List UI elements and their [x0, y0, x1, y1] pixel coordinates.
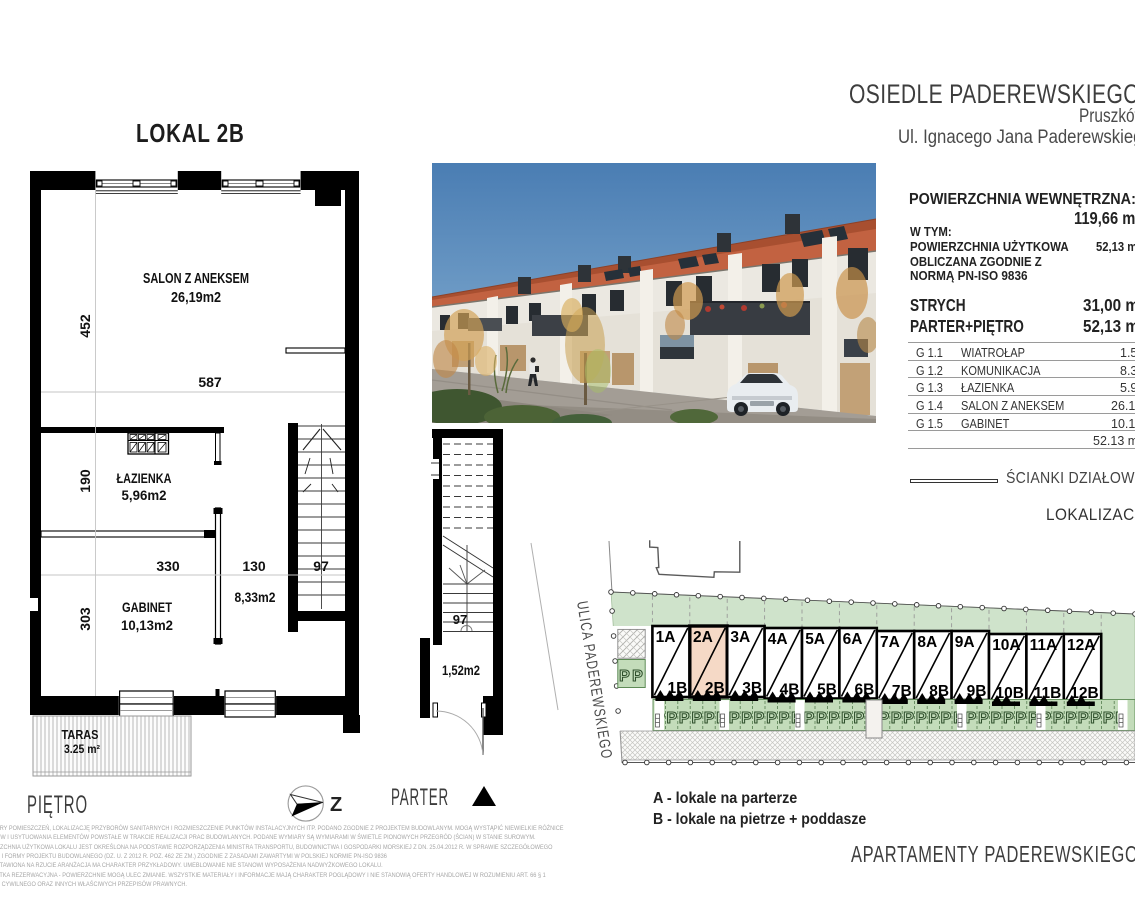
svg-text:26,19m2: 26,19m2 [171, 290, 221, 306]
svg-text:P: P [828, 710, 839, 727]
svg-text:P: P [1053, 710, 1064, 727]
svg-text:190: 190 [77, 469, 93, 493]
svg-text:P: P [1065, 710, 1076, 727]
svg-text:8A: 8A [917, 634, 937, 651]
svg-text:97: 97 [313, 558, 329, 574]
svg-text:5,96m2: 5,96m2 [122, 488, 167, 503]
svg-text:P: P [841, 710, 852, 727]
svg-text:9A: 9A [955, 634, 975, 651]
svg-text:P: P [891, 710, 902, 727]
svg-text:P: P [729, 710, 740, 727]
svg-text:P: P [1078, 710, 1089, 727]
svg-text:587: 587 [198, 374, 222, 390]
svg-text:P: P [853, 710, 864, 727]
svg-text:P: P [691, 710, 702, 727]
svg-text:P: P [916, 710, 927, 727]
svg-text:ULICA PADEREWSKIEGO: ULICA PADEREWSKIEGO [573, 600, 615, 761]
svg-text:11A: 11A [1030, 637, 1058, 654]
svg-text:P: P [903, 710, 914, 727]
svg-text:SALON Z ANEKSEM: SALON Z ANEKSEM [143, 271, 249, 287]
svg-text:P: P [991, 710, 1002, 727]
svg-text:PARTER: PARTER [391, 784, 449, 811]
svg-text:Z: Z [330, 794, 342, 816]
svg-text:P: P [928, 710, 939, 727]
svg-text:P: P [1015, 710, 1026, 727]
svg-text:P: P [1103, 710, 1114, 727]
svg-text:P: P [816, 710, 827, 727]
svg-text:P: P [966, 710, 977, 727]
svg-text:1A: 1A [656, 629, 676, 646]
svg-text:P: P [679, 710, 690, 727]
svg-text:P: P [704, 710, 715, 727]
svg-text:97: 97 [453, 612, 467, 627]
svg-text:2A: 2A [693, 629, 713, 646]
svg-text:P: P [619, 668, 630, 685]
svg-text:303: 303 [77, 607, 93, 631]
svg-text:ŁAZIENKA: ŁAZIENKA [117, 471, 172, 486]
svg-text:P: P [766, 710, 777, 727]
svg-text:10A: 10A [992, 637, 1020, 654]
svg-text:P: P [978, 710, 989, 727]
svg-text:5A: 5A [805, 631, 825, 648]
svg-text:P: P [804, 710, 815, 727]
svg-text:10,13m2: 10,13m2 [121, 618, 173, 633]
svg-text:TARAS: TARAS [62, 728, 99, 742]
svg-text:330: 330 [156, 558, 180, 574]
svg-text:1,52m2: 1,52m2 [442, 662, 480, 678]
svg-text:7A: 7A [880, 634, 900, 651]
svg-text:P: P [779, 710, 790, 727]
svg-text:P: P [666, 710, 677, 727]
svg-text:P: P [632, 668, 643, 685]
svg-text:P: P [941, 710, 952, 727]
svg-text:130: 130 [242, 558, 266, 574]
svg-text:3.25 m²: 3.25 m² [64, 744, 100, 756]
svg-text:4A: 4A [768, 631, 788, 648]
svg-text:P: P [1003, 710, 1014, 727]
svg-text:3A: 3A [730, 629, 750, 646]
svg-text:P: P [1090, 710, 1101, 727]
svg-text:PIĘTRO: PIĘTRO [27, 791, 88, 819]
svg-text:12A: 12A [1067, 637, 1095, 654]
svg-text:8,33m2: 8,33m2 [235, 590, 276, 605]
svg-text:P: P [741, 710, 752, 727]
svg-text:452: 452 [77, 314, 93, 338]
svg-text:6A: 6A [843, 631, 863, 648]
svg-text:GABINET: GABINET [122, 600, 173, 615]
svg-text:P: P [754, 710, 765, 727]
